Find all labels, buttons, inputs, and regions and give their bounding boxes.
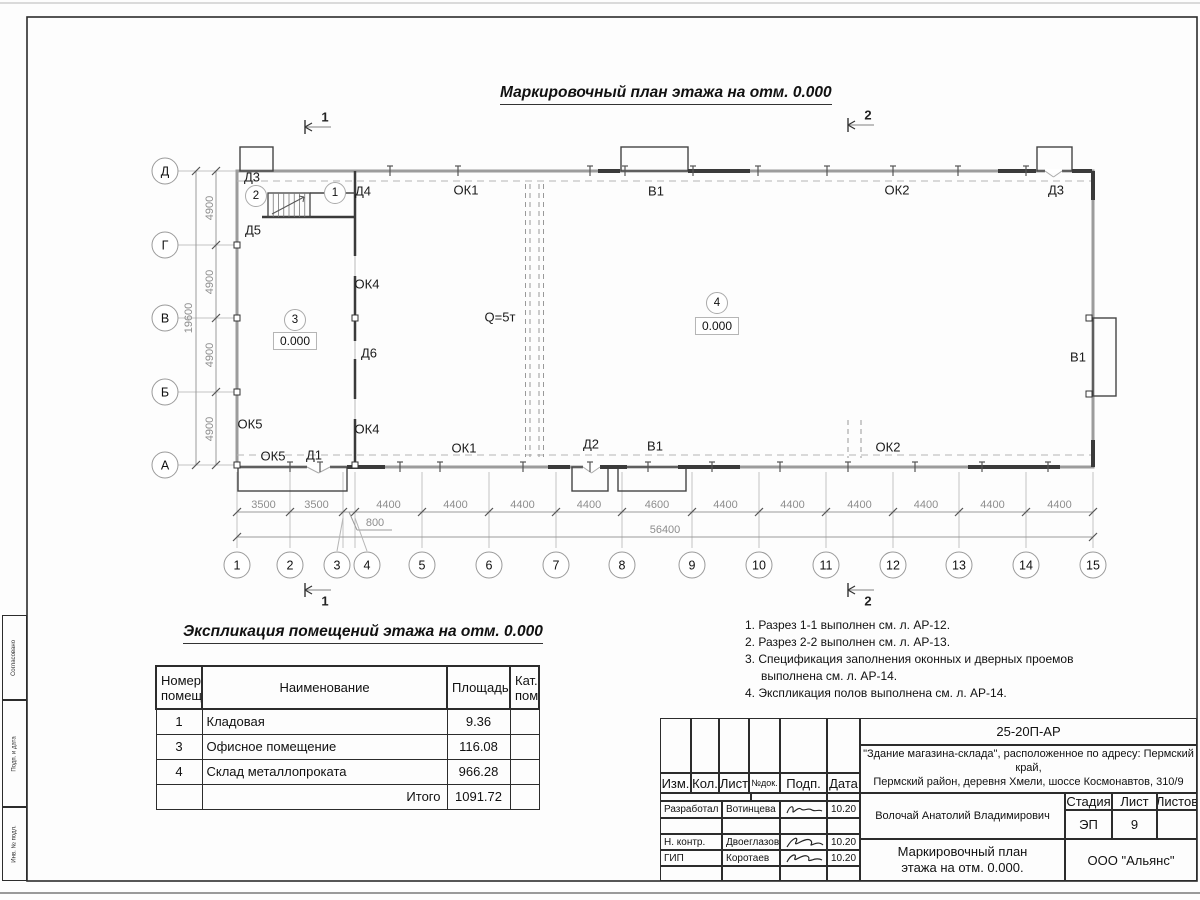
titleblock-empty-cell xyxy=(827,866,860,881)
strip-label: Подп. и дата xyxy=(12,736,18,771)
object-line2: Пермский район, деревня Хмели, шоссе Кос… xyxy=(873,776,1183,790)
role-label: Н. контр. xyxy=(660,834,722,850)
strip-label: Согласовано xyxy=(12,639,18,675)
table-total-row: Итого 1091.72 xyxy=(156,784,539,809)
room-number-mark: 4 xyxy=(706,292,728,314)
room-cat xyxy=(510,734,539,759)
role-name: Двоеглазов xyxy=(722,834,780,850)
col-axis-circle: 5 xyxy=(409,552,436,579)
col-axis-circle: 2 xyxy=(277,552,304,579)
room-number-mark: 2 xyxy=(245,185,267,207)
titleblock-empty-cell xyxy=(780,818,827,834)
titleblock-empty-cell xyxy=(780,718,827,773)
h-dim-label: 3500 xyxy=(251,499,275,511)
v-dim-label: 4900 xyxy=(204,196,216,220)
h-dim-label: 4400 xyxy=(980,499,1004,511)
doc-title-line2: этажа на отм. 0.000. xyxy=(901,860,1023,876)
titleblock-empty-cell xyxy=(827,818,860,834)
col-axis-circle: 9 xyxy=(679,552,706,579)
sheet-label: Лист xyxy=(1112,793,1157,810)
opening-label: ОК1 xyxy=(452,441,477,456)
room-number: 4 xyxy=(156,759,202,784)
titleblock-empty-cell xyxy=(827,793,860,801)
signature xyxy=(783,851,825,865)
plan-rect xyxy=(1093,318,1116,396)
role-date: 10.20 xyxy=(827,801,860,818)
room-name: Офисное помещение xyxy=(202,734,447,759)
table-row: 1 Кладовая 9.36 xyxy=(156,709,539,734)
opening-label: Д4 xyxy=(355,184,371,199)
opening-label: ОК5 xyxy=(238,417,263,432)
plan-rect xyxy=(621,147,688,171)
role-name: Вотинцева xyxy=(722,801,780,818)
h-dim-label: 4400 xyxy=(847,499,871,511)
role-label: ГИП xyxy=(660,850,722,866)
opening-label: ОК5 xyxy=(261,449,286,464)
plan-rect xyxy=(234,389,240,395)
object-description: "Здание магазина-склада", расположенное … xyxy=(860,745,1197,793)
elevation-mark: 0.000 xyxy=(273,332,317,350)
opening-label: В1 xyxy=(647,439,663,454)
plan-rect xyxy=(1086,315,1092,321)
titleblock-empty-cell xyxy=(660,866,722,881)
col-axis-circle: 12 xyxy=(880,552,907,579)
section-cut-number: 2 xyxy=(864,594,871,609)
col-axis-circle: 4 xyxy=(354,552,381,579)
col-izm: Изм. xyxy=(660,773,691,793)
stage-value: ЭП xyxy=(1065,810,1112,839)
room-cat xyxy=(510,709,539,734)
opening-label: Д5 xyxy=(245,223,261,238)
table-row: 3 Офисное помещение 116.08 xyxy=(156,734,539,759)
room-name: Кладовая xyxy=(202,709,447,734)
titleblock-empty-cell xyxy=(660,793,751,801)
doc-code: 25-20П-АР xyxy=(860,718,1197,745)
note-item: 2. Разрез 2-2 выполнен см. л. АР-13. xyxy=(745,634,1085,651)
h-dim-label: 4400 xyxy=(1047,499,1071,511)
col-axis-circle: 11 xyxy=(813,552,840,579)
row-axis-circle: Г xyxy=(152,232,179,259)
col-axis-circle: 8 xyxy=(609,552,636,579)
row-axis-circle: А xyxy=(152,452,179,479)
room-cat xyxy=(510,759,539,784)
room-number: 1 xyxy=(156,709,202,734)
drawing-sheet: Маркировочный план этажа на отм. 0.000 Э… xyxy=(0,0,1200,900)
signature-cell xyxy=(780,801,827,818)
section-cut-number: 2 xyxy=(864,108,871,123)
total-value: 1091.72 xyxy=(447,784,510,809)
v-total-dim-label: 19600 xyxy=(183,303,195,334)
titleblock-empty-cell xyxy=(722,866,780,881)
h-dim-label: 4600 xyxy=(645,499,669,511)
crane-capacity-label: Q=5т xyxy=(485,310,516,325)
titleblock-empty-cell xyxy=(749,718,780,773)
object-line1: "Здание магазина-склада", расположенное … xyxy=(861,748,1196,776)
sheets-label: Листов xyxy=(1157,793,1197,810)
role-label: Разработал xyxy=(660,801,722,818)
plan-rect xyxy=(1037,147,1072,171)
approver-name: Волочай Анатолий Владимирович xyxy=(860,793,1065,839)
opening-label: В1 xyxy=(648,184,664,199)
row-axis-circle: Б xyxy=(152,379,179,406)
empty-cell xyxy=(510,784,539,809)
explication-title: Экспликация помещений этажа на отм. 0.00… xyxy=(183,623,543,644)
opening-label: Д1 xyxy=(306,448,322,463)
plan-line xyxy=(337,518,343,551)
note-item: 1. Разрез 1-1 выполнен см. л. АР-12. xyxy=(745,617,1085,634)
col-kol: Кол. xyxy=(691,773,719,793)
strip-label: Инв. № подл. xyxy=(12,825,18,862)
col-data: Дата xyxy=(827,773,860,793)
room-name: Склад металлопроката xyxy=(202,759,447,784)
note-item: 3. Спецификация заполнения оконных и две… xyxy=(745,651,1085,685)
opening-label: Д6 xyxy=(361,346,377,361)
v-dim-label: 4900 xyxy=(204,343,216,367)
elevation-mark: 0.000 xyxy=(695,317,739,335)
col-axis-circle: 6 xyxy=(476,552,503,579)
room-area: 9.36 xyxy=(447,709,510,734)
section-cut-number: 1 xyxy=(321,594,328,609)
total-label: Итого xyxy=(202,784,447,809)
opening-label: В1 xyxy=(1070,350,1086,365)
col-axis-circle: 13 xyxy=(946,552,973,579)
table-row: 4 Склад металлопроката 966.28 xyxy=(156,759,539,784)
plan-rect xyxy=(234,242,240,248)
h-dim-label: 4400 xyxy=(443,499,467,511)
role-date: 10.20 xyxy=(827,834,860,850)
col-podp: Подп. xyxy=(780,773,827,793)
titleblock-empty-cell xyxy=(780,866,827,881)
signature xyxy=(783,835,825,849)
h-dim-label: 4400 xyxy=(914,499,938,511)
titleblock-empty-cell xyxy=(722,818,780,834)
room-number-mark: 3 xyxy=(284,309,306,331)
plan-rect xyxy=(234,315,240,321)
opening-label: ОК4 xyxy=(355,277,380,292)
titleblock-empty-cell xyxy=(691,718,719,773)
opening-label: ОК2 xyxy=(876,440,901,455)
titleblock-empty-cell xyxy=(660,718,691,773)
room-number: 3 xyxy=(156,734,202,759)
notes-list: 1. Разрез 1-1 выполнен см. л. АР-12. 2. … xyxy=(745,617,1085,702)
titleblock-empty-cell xyxy=(827,718,860,773)
col-list: Лист xyxy=(719,773,749,793)
stage-label: Стадия xyxy=(1065,793,1112,810)
opening-label: ОК1 xyxy=(454,183,479,198)
org-name: ООО "Альянс" xyxy=(1065,839,1197,881)
section-cut-number: 1 xyxy=(321,110,328,125)
h-dim-label: 4400 xyxy=(780,499,804,511)
col-axis-circle: 10 xyxy=(746,552,773,579)
sheet-value: 9 xyxy=(1112,810,1157,839)
signature-cell xyxy=(780,834,827,850)
doc-title-line1: Маркировочный план xyxy=(898,844,1028,860)
h-dim-label: 4400 xyxy=(577,499,601,511)
v-dim-label: 4900 xyxy=(204,269,216,293)
room-area: 116.08 xyxy=(447,734,510,759)
titleblock-empty-cell xyxy=(660,818,722,834)
signature-cell xyxy=(780,850,827,866)
h-dim-label: 4400 xyxy=(713,499,737,511)
plan-rect xyxy=(240,147,273,171)
strip-cell: Инв. № подл. xyxy=(2,807,27,881)
titleblock-empty-cell xyxy=(719,718,749,773)
room-number-mark: 1 xyxy=(324,182,346,204)
titleblock-empty-cell xyxy=(751,793,827,801)
strip-cell: Согласовано xyxy=(2,615,27,700)
h-total-dim-label: 56400 xyxy=(650,524,681,536)
col-axis-circle: 3 xyxy=(324,552,351,579)
plan-rect xyxy=(352,315,358,321)
col-axis-circle: 7 xyxy=(543,552,570,579)
opening-label: Д3 xyxy=(1048,183,1064,198)
room-area: 966.28 xyxy=(447,759,510,784)
role-date: 10.20 xyxy=(827,850,860,866)
plan-rect xyxy=(234,462,240,468)
opening-label: Д3 xyxy=(244,170,260,185)
column-header-area: Площадь xyxy=(447,666,510,709)
row-axis-circle: Д xyxy=(152,158,179,185)
h-dim-label: 4400 xyxy=(510,499,534,511)
role-name: Коротаев xyxy=(722,850,780,866)
column-header-name: Наименование xyxy=(202,666,447,709)
h-dim-label: 4400 xyxy=(376,499,400,511)
signature xyxy=(784,803,824,817)
doc-title: Маркировочный план этажа на отм. 0.000. xyxy=(860,839,1065,881)
opening-label: ОК4 xyxy=(355,422,380,437)
explication-table: Номер помещ. Наименование Площадь Кат. п… xyxy=(155,665,540,810)
plan-rect xyxy=(238,467,347,491)
sheets-value xyxy=(1157,810,1197,839)
col-axis-circle: 15 xyxy=(1080,552,1107,579)
col-axis-circle: 1 xyxy=(224,552,251,579)
plan-title: Маркировочный план этажа на отм. 0.000 xyxy=(500,84,832,105)
col-axis-circle: 14 xyxy=(1013,552,1040,579)
row-axis-circle: В xyxy=(152,305,179,332)
note-item: 4. Экспликация полов выполнена см. л. АР… xyxy=(745,685,1085,702)
col-ndok: №док. xyxy=(749,773,780,793)
empty-cell xyxy=(156,784,202,809)
opening-label: Д2 xyxy=(583,437,599,452)
plan-rect xyxy=(618,467,686,491)
plan-rect xyxy=(1086,391,1092,397)
column-header-number: Номер помещ. xyxy=(156,666,202,709)
h-dim-label: 800 xyxy=(366,517,384,529)
opening-label: ОК2 xyxy=(885,183,910,198)
strip-cell: Подп. и дата xyxy=(2,700,27,807)
column-header-cat: Кат. пом. xyxy=(510,666,539,709)
v-dim-label: 4900 xyxy=(204,416,216,440)
h-dim-label: 3500 xyxy=(304,499,328,511)
plan-rect xyxy=(352,462,358,468)
